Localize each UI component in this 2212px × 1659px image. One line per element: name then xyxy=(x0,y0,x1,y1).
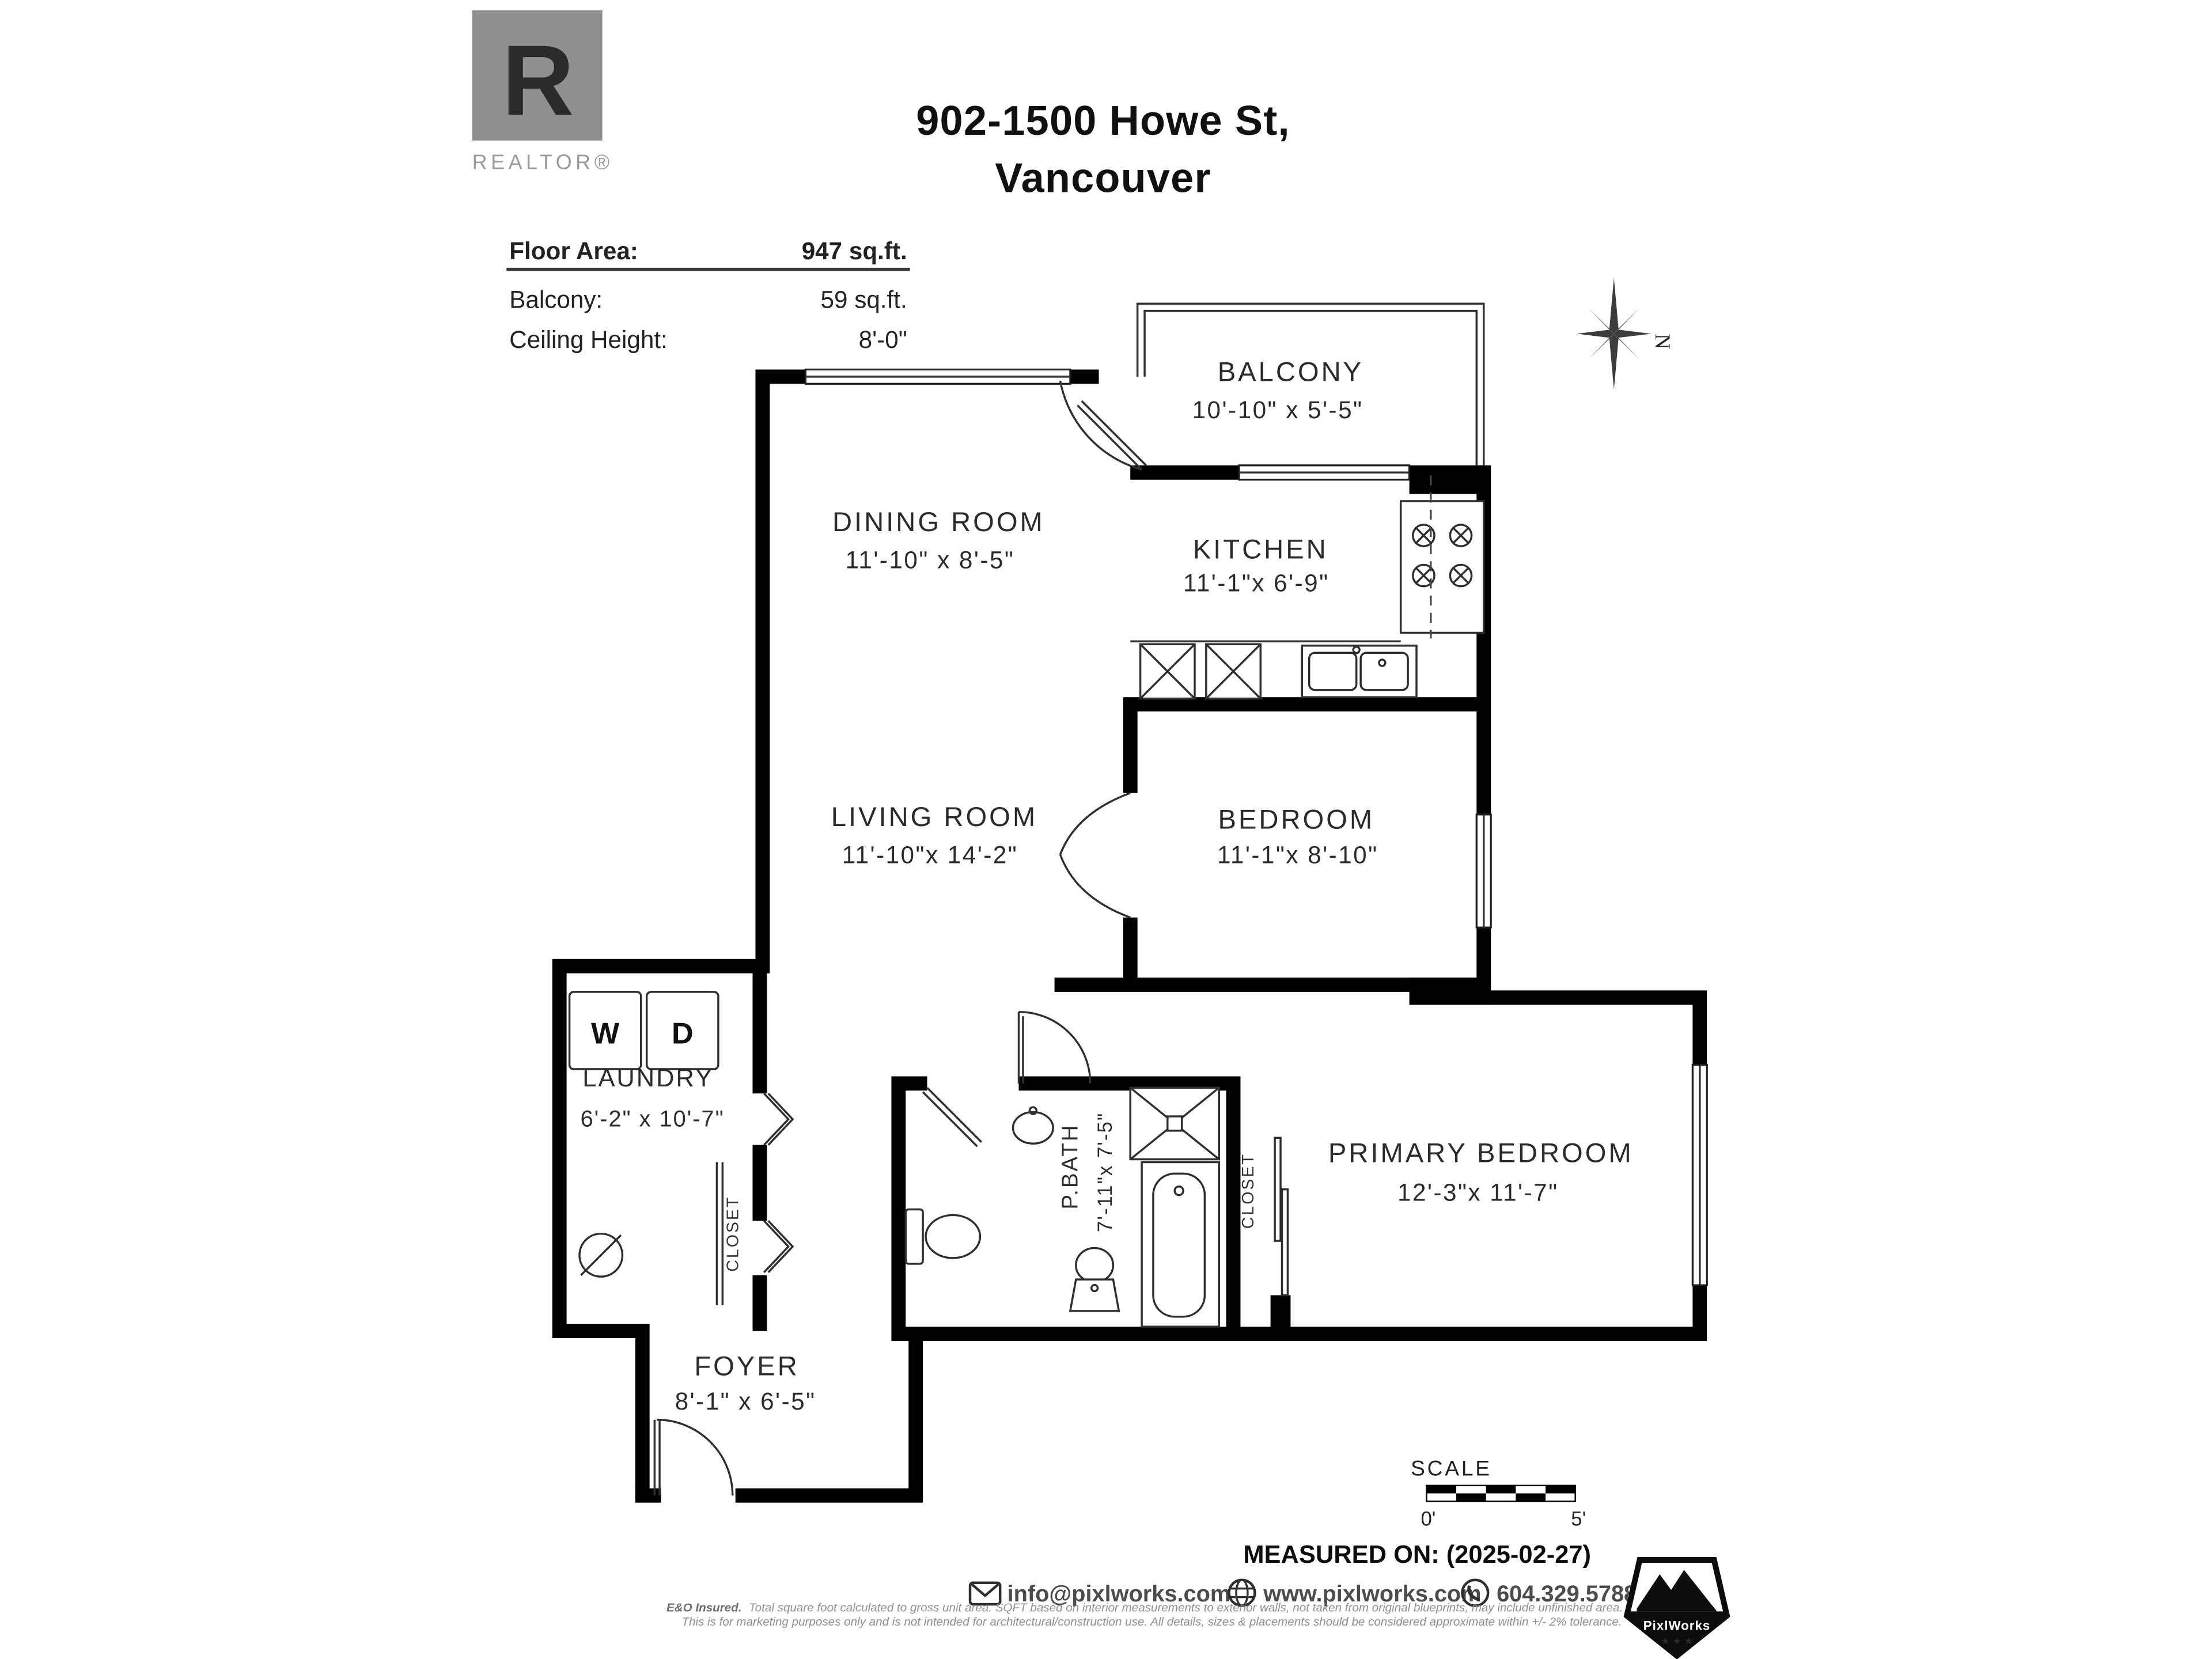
bedroom-double-door xyxy=(1060,793,1131,918)
stove xyxy=(1401,501,1484,633)
laundry-name: LAUNDRY xyxy=(582,1065,714,1092)
measured-on: MEASURED ON: (2025-02-27) xyxy=(1243,1541,1591,1569)
wall-chunk-closet xyxy=(1271,1295,1291,1334)
ceiling-height-label: Ceiling Height: xyxy=(509,326,668,353)
living-name: LIVING ROOM xyxy=(831,802,1037,832)
balcony-name: BALCONY xyxy=(1218,357,1363,387)
closet-sliding-doors xyxy=(1275,1138,1287,1295)
pedestal-sink xyxy=(1070,1248,1119,1311)
disclaimer-bold: E&O Insured. xyxy=(666,1601,742,1614)
compass-rose: N xyxy=(1577,278,1674,389)
bathtub xyxy=(1142,1162,1219,1327)
hall-door xyxy=(1018,1012,1090,1084)
washer-letter: W xyxy=(591,1017,620,1050)
scale-label: SCALE xyxy=(1411,1456,1492,1480)
wall-chunk-step xyxy=(1410,978,1491,1005)
dining-dims: 11'-10" x 8'-5" xyxy=(846,547,1015,574)
dryer-letter: D xyxy=(672,1017,694,1050)
laundry-tub-slash xyxy=(581,1235,621,1275)
area-info: Floor Area: 947 sq.ft. Balcony: 59 sq.ft… xyxy=(506,237,910,353)
laundry-closet-shelf xyxy=(717,1162,722,1305)
living-dims: 11'-10"x 14'-2" xyxy=(842,841,1018,868)
scale-end: 5' xyxy=(1571,1508,1586,1530)
balcony-rail-inner xyxy=(1145,311,1476,465)
bifold-doors xyxy=(764,1093,793,1272)
scale-bar-graphic xyxy=(1426,1486,1575,1501)
compass-north-label: N xyxy=(1650,334,1674,349)
laundry-closet-label: CLOSET xyxy=(724,1196,743,1272)
badge-stars: ★ ★ ★ xyxy=(1661,1635,1693,1647)
title-line2: Vancouver xyxy=(995,155,1211,201)
laundry-dims: 6'-2" x 10'-7" xyxy=(581,1106,725,1131)
title-line1: 902-1500 Howe St, xyxy=(916,98,1290,144)
shower xyxy=(1130,1088,1219,1159)
pbath-dims: 7'-11"x 7'-5" xyxy=(1094,1112,1116,1232)
disclaimer-line1: E&O Insured.Total square foot calculated… xyxy=(666,1601,1623,1614)
kitchen-dims: 11'-1"x 6'-9" xyxy=(1183,569,1330,596)
pbath-name: P.BATH xyxy=(1058,1123,1082,1209)
footer: MEASURED ON: (2025-02-27) info@pixlworks… xyxy=(666,1541,1727,1656)
badge-brand-text: PixlWorks xyxy=(1643,1619,1711,1633)
entry-door xyxy=(654,1420,732,1496)
kitchen-name: KITCHEN xyxy=(1193,534,1328,565)
laundry-fixtures: W D xyxy=(570,992,718,1277)
toilet xyxy=(906,1209,980,1263)
floor-area-value: 947 sq.ft. xyxy=(802,237,907,264)
balcony-door xyxy=(1060,381,1146,469)
floor-area-label: Floor Area: xyxy=(509,237,638,264)
pixlworks-badge: PixlWorks ★ ★ ★ xyxy=(1627,1560,1727,1656)
bedroom-name: BEDROOM xyxy=(1218,805,1375,835)
wall-chunk-fridge xyxy=(1410,465,1484,494)
dining-name: DINING ROOM xyxy=(832,507,1045,537)
bath-door xyxy=(923,1088,982,1146)
balcony-area-label: Balcony: xyxy=(509,286,603,313)
foyer-name: FOYER xyxy=(694,1351,799,1382)
foyer-dims: 8'-1" x 6'-5" xyxy=(675,1388,816,1415)
realtor-logo: R REALTOR® xyxy=(472,10,613,174)
realtor-logo-letter: R xyxy=(502,24,574,136)
scale-bar: SCALE 0' 5' xyxy=(1411,1456,1586,1530)
primary-closet-label: CLOSET xyxy=(1239,1153,1257,1229)
realtor-wordmark: REALTOR® xyxy=(472,150,613,174)
ceiling-height-value: 8'-0" xyxy=(859,326,907,353)
balcony-area-value: 59 sq.ft. xyxy=(821,286,907,313)
disclaimer-line2: This is for marketing purposes only and … xyxy=(681,1615,1622,1628)
vanity-sink xyxy=(1013,1107,1054,1143)
primary-name: PRIMARY BEDROOM xyxy=(1328,1138,1634,1168)
floorplan-page: R REALTOR® 902-1500 Howe St, Vancouver F… xyxy=(0,0,2212,1659)
kitchen-sink xyxy=(1302,646,1416,697)
bedroom-dims: 11'-1"x 8'-10" xyxy=(1217,841,1378,868)
primary-dims: 12'-3"x 11'-7" xyxy=(1397,1179,1559,1206)
walls xyxy=(552,369,1707,1502)
balcony-dims: 10'-10" x 5'-5" xyxy=(1192,396,1363,423)
page-title: 902-1500 Howe St, Vancouver xyxy=(916,98,1290,201)
scale-start: 0' xyxy=(1421,1508,1435,1530)
